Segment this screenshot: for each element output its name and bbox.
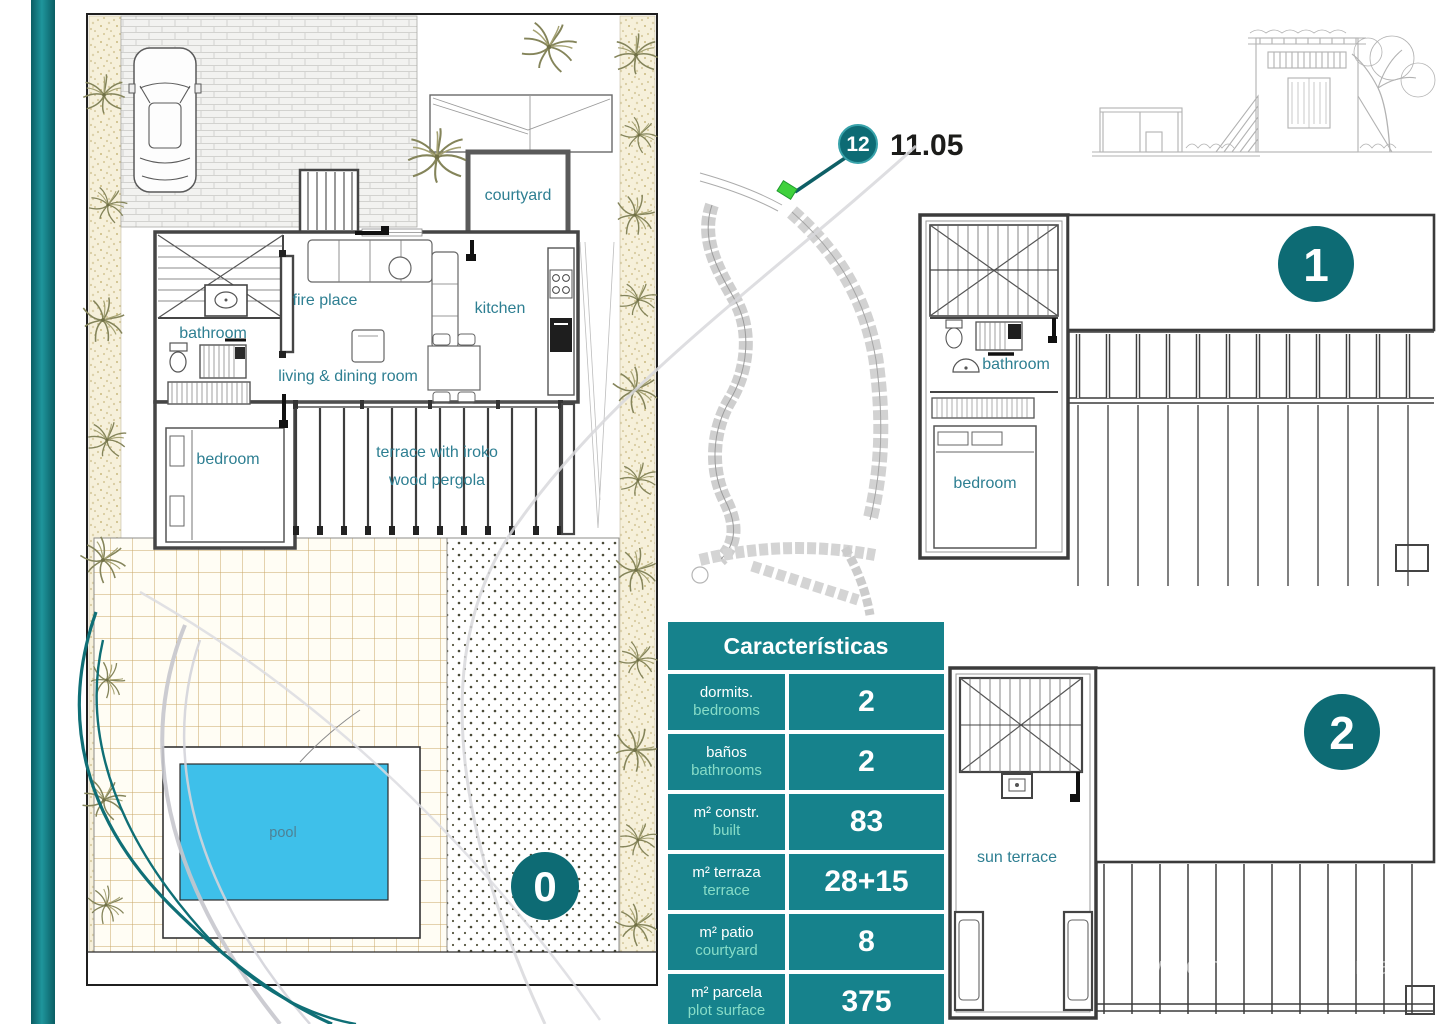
elevation-sketch	[1092, 30, 1435, 156]
label-es: m² constr.	[668, 804, 785, 822]
table-row-bedrooms: dormits. bedrooms 2	[668, 674, 944, 730]
label-bathroom-gf: bathroom	[179, 325, 247, 342]
characteristics-table: Características dormits. bedrooms 2 baño…	[668, 622, 944, 1024]
row-label: m² parcela plot surface	[668, 974, 785, 1024]
label-pool: pool	[269, 825, 296, 841]
floor-2-plan: sun terrace 2 viviendas sanas	[950, 668, 1434, 1018]
plot-marker	[777, 181, 797, 200]
plot-elevation-label: 11.05	[890, 129, 963, 162]
badge-floor-2-number: 2	[1329, 707, 1355, 759]
label-en: courtyard	[668, 942, 785, 960]
row-value: 8	[789, 914, 944, 970]
label-living-dining: living & dining room	[278, 368, 418, 385]
badge-floor-0-number: 0	[533, 863, 556, 910]
label-en: bathrooms	[668, 762, 785, 780]
label-es: m² patio	[668, 924, 785, 942]
label-bedroom-f1: bedroom	[953, 475, 1016, 492]
label-en: plot surface	[668, 1002, 785, 1020]
row-label: m² patio courtyard	[668, 914, 785, 970]
label-courtyard: courtyard	[485, 187, 552, 204]
label-es: dormits.	[668, 684, 785, 702]
badge-plot-12-number: 12	[846, 133, 869, 156]
row-label: baños bathrooms	[668, 734, 785, 790]
label-kitchen: kitchen	[475, 300, 526, 317]
label-bathroom-f1: bathroom	[982, 356, 1050, 373]
table-row-courtyard: m² patio courtyard 8	[668, 914, 944, 970]
ground-floor-plan: bathroom fire place courtyard kitchen li…	[74, 12, 665, 985]
floor-1-plan: bathroom bedroom 1	[920, 215, 1434, 586]
label-es: m² terraza	[668, 864, 785, 882]
label-en: bedrooms	[668, 702, 785, 720]
characteristics-title: Características	[668, 622, 944, 670]
row-value: 375	[789, 974, 944, 1024]
label-es: m² parcela	[668, 984, 785, 1002]
table-row-bathrooms: baños bathrooms 2	[668, 734, 944, 790]
badge-floor-1-number: 1	[1303, 239, 1329, 291]
right-planting-strip	[620, 16, 655, 952]
car	[129, 48, 201, 192]
row-value: 83	[789, 794, 944, 850]
label-es: baños	[668, 744, 785, 762]
row-value: 2	[789, 674, 944, 730]
label-en: built	[668, 822, 785, 840]
label-bedroom-gf: bedroom	[196, 451, 259, 468]
label-en: terrace	[668, 882, 785, 900]
row-label: m² terraza terrace	[668, 854, 785, 910]
label-fire-place: fire place	[293, 292, 358, 309]
table-row-terrace: m² terraza terrace 28+15	[668, 854, 944, 910]
floorplan-sheet: bathroom fire place courtyard kitchen li…	[0, 0, 1440, 1024]
row-label: dormits. bedrooms	[668, 674, 785, 730]
row-value: 28+15	[789, 854, 944, 910]
label-terrace-1: terrace with iroko	[376, 444, 498, 461]
row-label: m² constr. built	[668, 794, 785, 850]
table-row-plot-surface: m² parcela plot surface 375	[668, 974, 944, 1024]
label-sun-terrace: sun terrace	[977, 849, 1057, 866]
table-row-built: m² constr. built 83	[668, 794, 944, 850]
label-terrace-2: wood pergola	[388, 472, 485, 489]
row-value: 2	[789, 734, 944, 790]
watermark-text: viviendas sanas	[1115, 953, 1421, 980]
